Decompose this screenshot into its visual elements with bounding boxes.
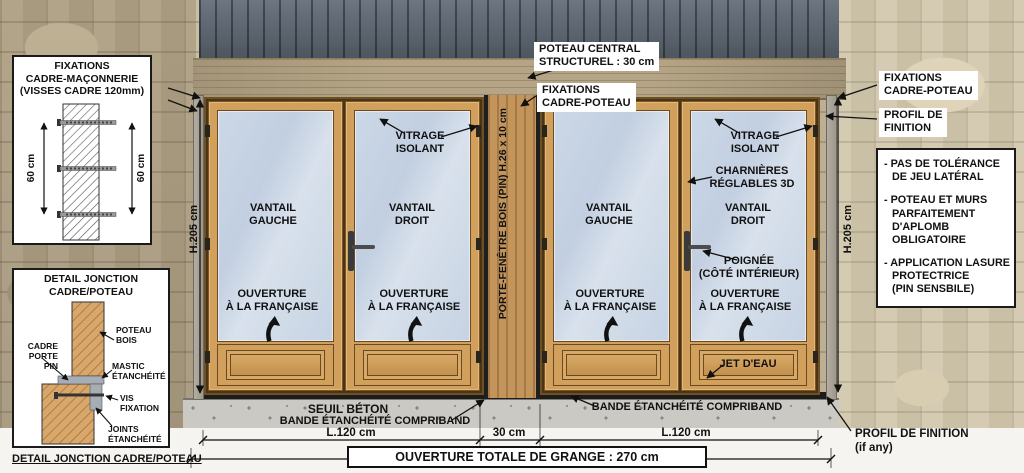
door-handle[interactable] [684, 231, 690, 271]
ouverture-label: OUVERTURE À LA FRANÇAISE [564, 288, 656, 315]
door-handle-lever[interactable] [352, 245, 375, 249]
wood-cladding [199, 0, 839, 62]
height-dimension-right: H.205 cm [842, 205, 855, 253]
french-opening-arrow-icon [600, 316, 622, 343]
fixations-cadre-poteau-callout: FIXATIONS CADRE-POTEAU [879, 71, 978, 100]
central-post-vertical-label: PORTE-FENÊTRE BOIS (PIN) H.26 x 10 cm [497, 108, 510, 319]
hinge-strip [205, 125, 210, 375]
door-leaf [208, 101, 343, 391]
poteau-bois-label: POTEAU BOIS [116, 326, 151, 346]
charnieres-label: CHARNIÈRES RÉGLABLES 3D [710, 165, 795, 192]
raised-panel [563, 351, 660, 379]
requirements-notes-box: - PAS DE TOLÉRANCE DE JEU LATÉRAL - POTE… [876, 148, 1016, 308]
hinge-strip [476, 125, 481, 375]
french-opening-arrow-icon [404, 316, 426, 343]
vitrage-isolant-label: VITRAGE ISOLANT [396, 130, 445, 157]
vis-fixation-label: VIS FIXATION [120, 394, 159, 414]
width-dimension-left: L.120 cm [326, 426, 375, 440]
finish-profile-right [826, 95, 837, 400]
door-handle[interactable] [348, 231, 354, 271]
detail-jonction-cadre-poteau: DETAIL JONCTION CADRE/POTEAU [12, 268, 170, 448]
dim-60cm-left: 60 cm [26, 153, 37, 181]
raised-panel [227, 351, 324, 379]
cadre-porte-pin-label: CADRE PORTE PIN [20, 342, 58, 371]
profil-de-finition-callout: PROFIL DE FINITION [879, 108, 947, 137]
mastic-etancheite-label: MASTIC ÉTANCHÉITÉ [112, 362, 166, 382]
bande-etancheite-label: BANDE ÉTANCHÉITÉ COMPRIBAND [592, 401, 782, 414]
hinge-strip [542, 125, 547, 375]
french-opening-arrow-icon [735, 316, 757, 343]
joints-etancheite-label: JOINTS ÉTANCHÉITÉ [108, 425, 162, 445]
central-structural-post [484, 95, 540, 398]
oak-lintel-beam [193, 58, 846, 100]
profil-if-any-label: PROFIL DE FINITION (if any) [855, 427, 969, 455]
width-dimension-center: 30 cm [493, 426, 526, 440]
ouverture-label: OUVERTURE À LA FRANÇAISE [368, 288, 460, 315]
barn-door-diagram: VANTAIL GAUCHE VANTAIL DROIT VANTAIL GAU… [0, 0, 1024, 473]
french-opening-arrow-icon [262, 316, 284, 343]
dim-60cm-right: 60 cm [136, 153, 147, 181]
poignee-label: POIGNÉE (CÔTÉ INTÉRIEUR) [699, 255, 799, 282]
fixations-drawing: 60 cm 60 cm [14, 100, 150, 244]
bottom-rail [218, 345, 333, 385]
vantail-gauche-label: VANTAIL GAUCHE [585, 202, 633, 229]
jet-deau-label: JET D'EAU [719, 358, 776, 371]
width-dimension-right: L.120 cm [661, 426, 710, 440]
detail-fixations-maconnerie: FIXATIONS CADRE-MAÇONNERIE (VISSES CADRE… [12, 55, 152, 245]
door-handle-lever[interactable] [688, 245, 711, 249]
detail-jonction-title: DETAIL JONCTION CADRE/POTEAU [14, 270, 168, 298]
detail-fixations-title: FIXATIONS CADRE-MAÇONNERIE (VISSES CADRE… [14, 57, 150, 98]
vantail-droit-label: VANTAIL DROIT [725, 202, 771, 229]
fixations-cadre-poteau-callout: FIXATIONS CADRE-POTEAU [537, 83, 636, 112]
height-dimension-left: H.205 cm [188, 205, 201, 253]
ouverture-label: OUVERTURE À LA FRANÇAISE [226, 288, 318, 315]
hinge-strip [813, 125, 818, 375]
door-leaf [544, 101, 679, 391]
vantail-droit-label: VANTAIL DROIT [389, 202, 435, 229]
bottom-rail [554, 345, 669, 385]
detail-jonction-caption: DETAIL JONCTION CADRE/POTEAU [12, 453, 202, 466]
note-item: - APPLICATION LASURE PROTECTRICE (PIN SE… [884, 257, 1011, 297]
vitrage-isolant-label: VITRAGE ISOLANT [731, 130, 780, 157]
raised-panel [364, 351, 461, 379]
total-opening-dimension: OUVERTURE TOTALE DE GRANGE : 270 cm [347, 446, 707, 468]
bottom-rail [355, 345, 470, 385]
poteau-central-callout: POTEAU CENTRAL STRUCTUREL : 30 cm [534, 42, 659, 71]
note-item: - POTEAU ET MURS PARFAITEMENT D'APLOMB O… [884, 194, 1011, 247]
note-item: - PAS DE TOLÉRANCE DE JEU LATÉRAL [884, 158, 1011, 184]
vantail-gauche-label: VANTAIL GAUCHE [249, 202, 297, 229]
ouverture-label: OUVERTURE À LA FRANÇAISE [699, 288, 791, 315]
